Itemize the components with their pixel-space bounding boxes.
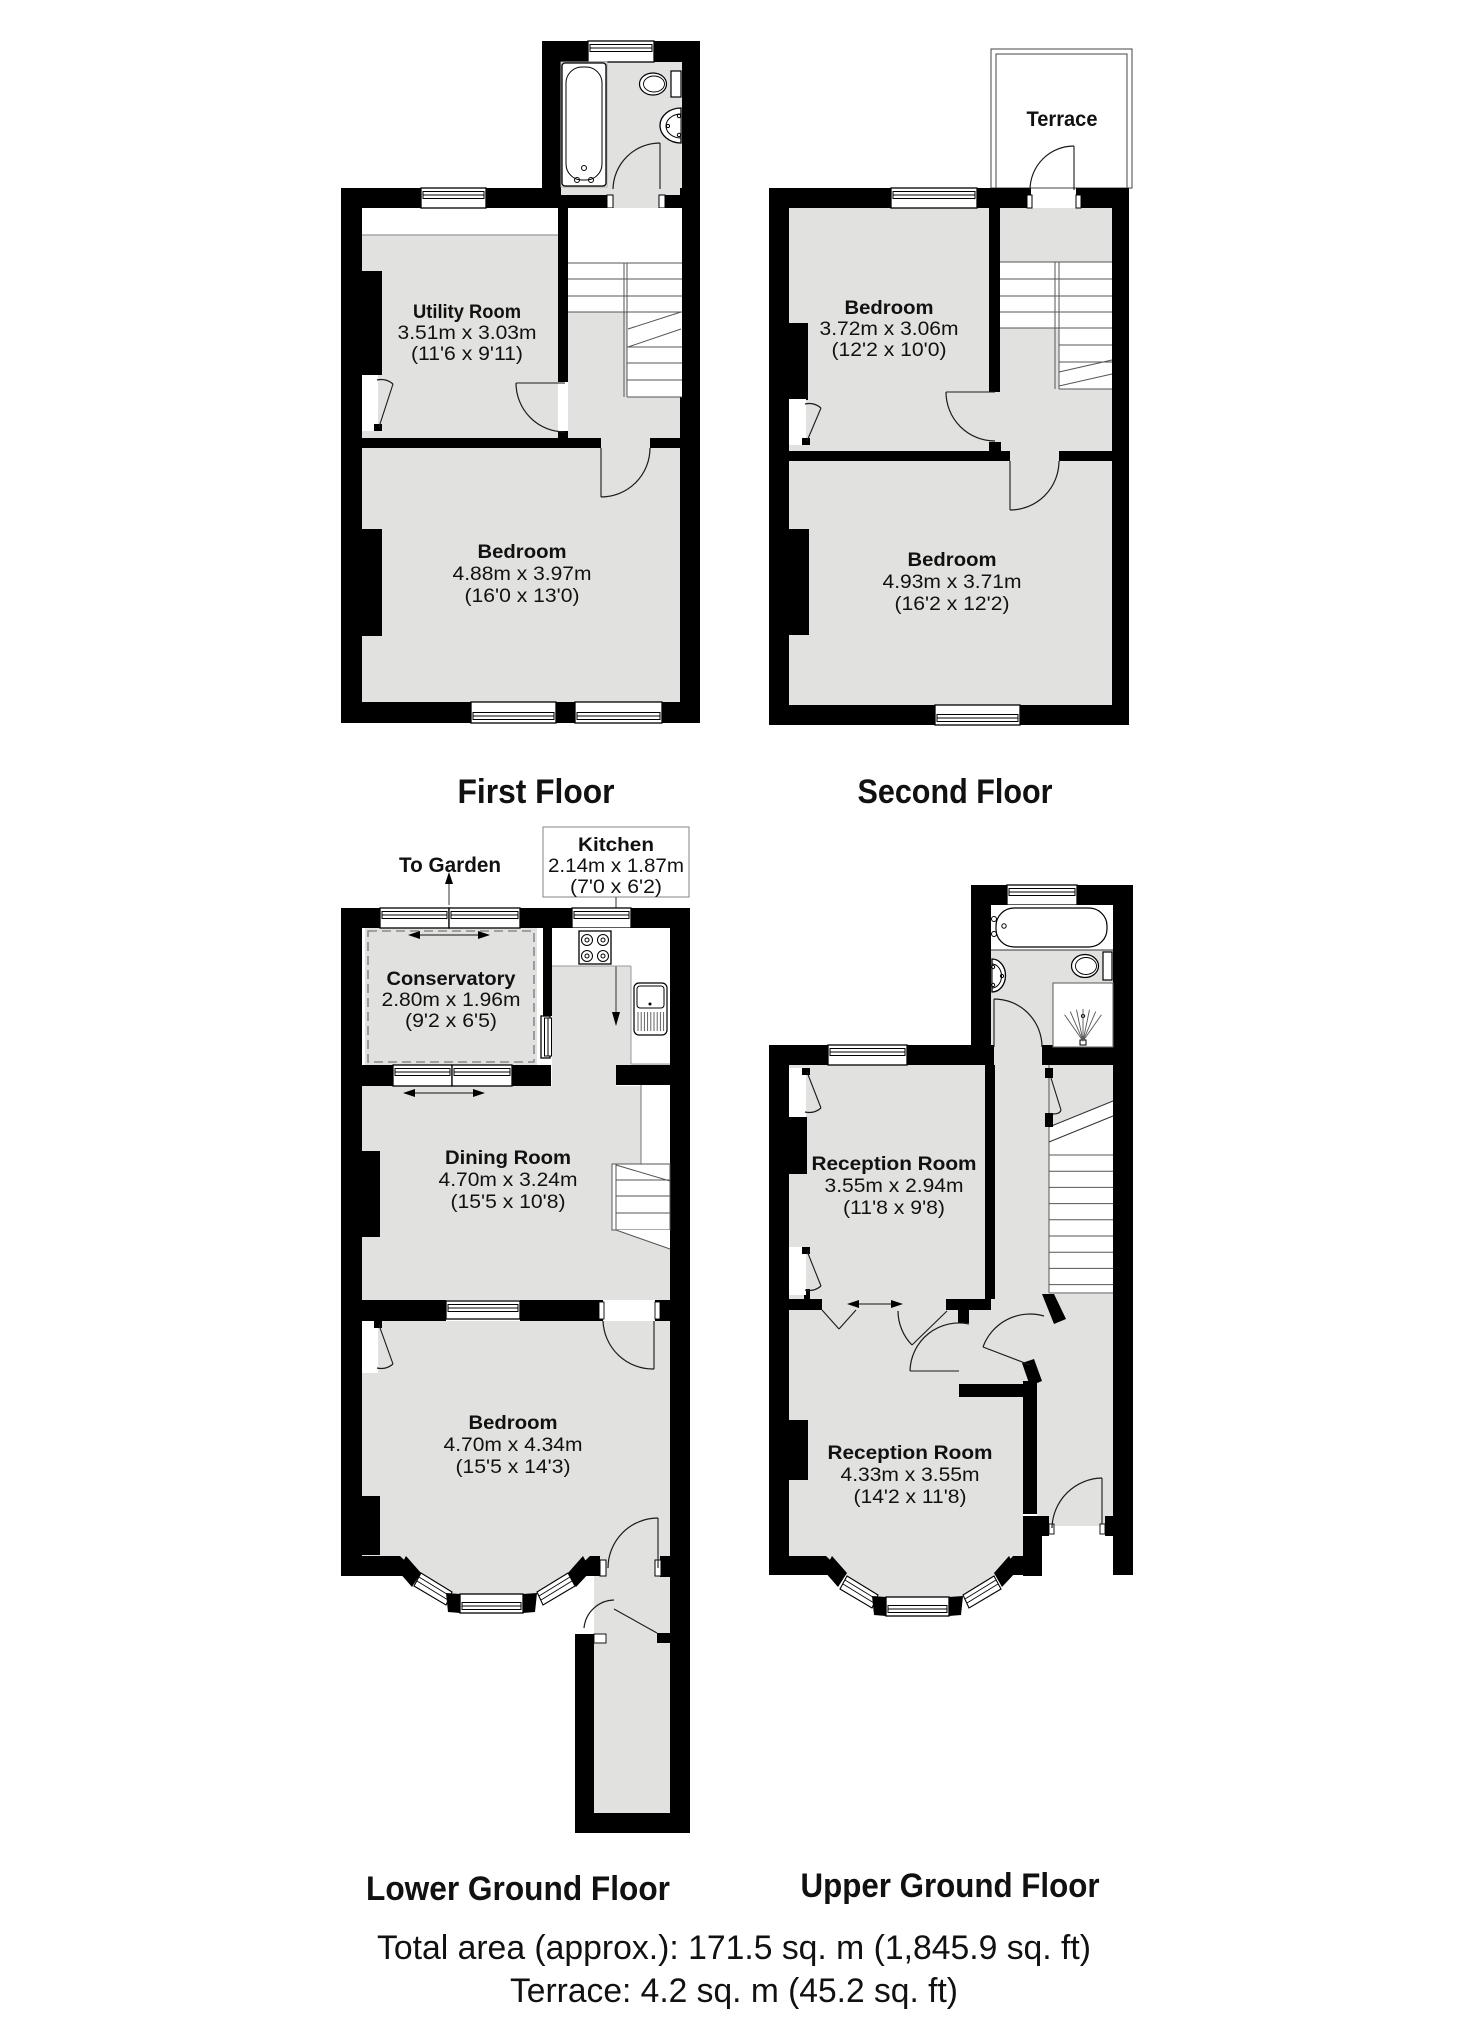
svg-text:Bedroom: Bedroom: [478, 542, 567, 563]
svg-text:4.93m x 3.71m: 4.93m x 3.71m: [883, 572, 1022, 593]
svg-text:2.80m x 1.96m: 2.80m x 1.96m: [382, 990, 521, 1011]
svg-text:Reception Room: Reception Room: [812, 1154, 977, 1175]
svg-text:Reception Room: Reception Room: [828, 1443, 993, 1464]
svg-text:First Floor: First Floor: [458, 773, 615, 811]
svg-text:(16'2 x 12'2): (16'2 x 12'2): [895, 594, 1010, 615]
svg-text:Kitchen: Kitchen: [578, 835, 654, 856]
svg-text:Lower Ground Floor: Lower Ground Floor: [366, 1870, 670, 1908]
svg-text:(7'0 x 6'2): (7'0 x 6'2): [570, 877, 662, 898]
svg-text:Bedroom: Bedroom: [845, 298, 934, 319]
svg-text:(15'5 x 14'3): (15'5 x 14'3): [456, 1457, 571, 1478]
svg-text:(14'2 x 11'8): (14'2 x 11'8): [854, 1487, 967, 1508]
svg-text:Terrace: Terrace: [1027, 108, 1098, 131]
svg-text:Upper Ground Floor: Upper Ground Floor: [801, 1867, 1100, 1905]
svg-text:Conservatory: Conservatory: [387, 969, 516, 990]
svg-text:Bedroom: Bedroom: [908, 550, 997, 571]
svg-text:(12'2 x 10'0): (12'2 x 10'0): [832, 340, 947, 361]
svg-text:4.70m x 4.34m: 4.70m x 4.34m: [444, 1435, 583, 1456]
svg-text:3.72m x 3.06m: 3.72m x 3.06m: [820, 319, 959, 340]
svg-text:Total area (approx.): 171.5 sq: Total area (approx.): 171.5 sq. m (1,845…: [377, 1929, 1091, 1967]
svg-text:4.88m x 3.97m: 4.88m x 3.97m: [453, 564, 592, 585]
svg-text:4.33m x 3.55m: 4.33m x 3.55m: [841, 1465, 980, 1486]
svg-text:Dining Room: Dining Room: [445, 1148, 571, 1169]
svg-text:Second Floor: Second Floor: [858, 773, 1053, 811]
svg-text:2.14m x 1.87m: 2.14m x 1.87m: [548, 856, 684, 877]
svg-text:(11'8 x 9'8): (11'8 x 9'8): [843, 1198, 945, 1219]
svg-text:Bedroom: Bedroom: [469, 1413, 558, 1434]
svg-text:Terrace: 4.2 sq. m (45.2 sq. f: Terrace: 4.2 sq. m (45.2 sq. ft): [510, 1972, 958, 2010]
svg-text:(16'0 x 13'0): (16'0 x 13'0): [465, 586, 580, 607]
svg-text:4.70m x 3.24m: 4.70m x 3.24m: [439, 1170, 578, 1191]
svg-text:3.51m x 3.03m: 3.51m x 3.03m: [398, 323, 537, 344]
svg-text:To Garden: To Garden: [399, 854, 501, 877]
svg-text:3.55m x 2.94m: 3.55m x 2.94m: [825, 1176, 964, 1197]
svg-text:(15'5 x 10'8): (15'5 x 10'8): [451, 1192, 566, 1213]
svg-text:(9'2 x 6'5): (9'2 x 6'5): [405, 1011, 497, 1032]
svg-text:Utility Room: Utility Room: [413, 302, 521, 323]
svg-text:(11'6 x 9'11): (11'6 x 9'11): [411, 344, 523, 365]
